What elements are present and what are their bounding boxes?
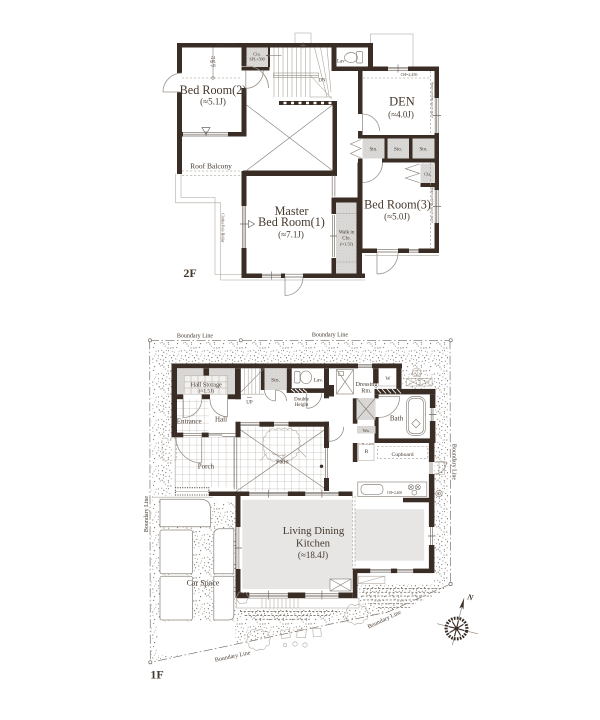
- svg-text:DEN: DEN: [389, 95, 415, 109]
- svg-text:Bed Room(3): Bed Room(3): [364, 197, 431, 211]
- svg-text:Rm.: Rm.: [361, 388, 372, 395]
- svg-text:Walk in: Walk in: [339, 231, 355, 236]
- svg-text:Boundary Line: Boundary Line: [144, 496, 150, 532]
- svg-text:SPL+500: SPL+500: [249, 57, 264, 62]
- svg-text:Bed Room(2): Bed Room(2): [180, 83, 247, 97]
- svg-text:Lav: Lav: [337, 60, 345, 65]
- svg-text:(≈4.0J): (≈4.0J): [388, 110, 414, 120]
- svg-text:Sto.: Sto.: [370, 148, 378, 153]
- svg-text:Lav.: Lav.: [314, 378, 324, 384]
- svg-text:1F: 1F: [150, 668, 163, 682]
- svg-text:W: W: [385, 376, 391, 382]
- svg-text:Bath: Bath: [390, 415, 404, 423]
- svg-text:(≈5.0J): (≈5.0J): [384, 212, 410, 222]
- svg-text:Height: Height: [295, 403, 309, 408]
- svg-text:Sto.: Sto.: [271, 377, 280, 383]
- svg-text:Patio: Patio: [276, 459, 288, 465]
- svg-text:Sto.: Sto.: [420, 148, 428, 153]
- svg-text:(≈1.5J): (≈1.5J): [340, 242, 354, 247]
- svg-text:(≈7.1J): (≈7.1J): [278, 230, 304, 240]
- svg-text:2F: 2F: [183, 266, 196, 280]
- svg-text:Boundary Line: Boundary Line: [312, 333, 348, 339]
- svg-text:Car Space: Car Space: [187, 579, 220, 588]
- svg-text:Wa.: Wa.: [363, 428, 370, 433]
- svg-text:Double: Double: [294, 398, 310, 403]
- svg-text:Cla.: Cla.: [424, 172, 431, 177]
- svg-text:Clothes Pole Holder: Clothes Pole Holder: [221, 213, 225, 243]
- svg-text:Roof Balcony: Roof Balcony: [190, 162, 232, 171]
- svg-text:(≈18.4J): (≈18.4J): [298, 550, 328, 560]
- svg-text:Kitchen: Kitchen: [296, 538, 331, 550]
- svg-text:Boundary Line: Boundary Line: [451, 444, 457, 480]
- svg-text:DN: DN: [318, 79, 326, 84]
- svg-text:UP: UP: [246, 401, 253, 406]
- svg-text:Hall Storage: Hall Storage: [191, 381, 222, 388]
- svg-text:Boundary Line: Boundary Line: [177, 334, 213, 340]
- svg-text:(≈5.1J): (≈5.1J): [200, 97, 226, 107]
- svg-text:(≈1.5J): (≈1.5J): [199, 388, 215, 395]
- svg-text:R: R: [365, 449, 369, 455]
- svg-text:+45: +45: [210, 64, 216, 68]
- svg-text:Porch: Porch: [198, 462, 215, 470]
- svg-text:Cupboard: Cupboard: [391, 452, 413, 458]
- svg-text:Entrance: Entrance: [177, 417, 202, 425]
- svg-text:Sto.: Sto.: [394, 148, 402, 153]
- svg-text:Living Dining: Living Dining: [283, 525, 345, 537]
- svg-text:Bed Room(1): Bed Room(1): [258, 215, 325, 229]
